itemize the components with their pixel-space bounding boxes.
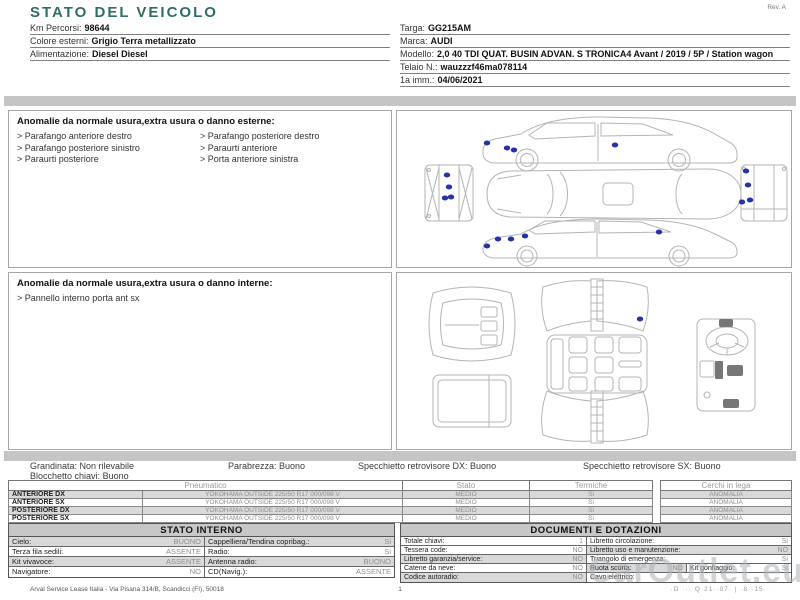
documents-title: DOCUMENTI E DOTAZIONI: [401, 524, 791, 537]
tyre-spec: YOKOHAMA OUTSIDE 225/50 R17 000/098 V: [143, 515, 403, 523]
interior-state-table: STATO INTERNO Cielo:BUONOCappelliera/Ten…: [8, 523, 395, 578]
info-value: Grigio Terra metallizzato: [92, 36, 196, 46]
kv-cell: Antenna radio:BUONO: [205, 557, 394, 566]
kv-row: Terza fila sedili:ASSENTERadio:Si: [9, 547, 394, 557]
tyre-table: Pneumatico Stato Termiche ANTERIORE DXYO…: [8, 480, 653, 523]
tyre-col-pneumatico: Pneumatico: [9, 481, 403, 491]
info-value: 2,0 40 TDI QUAT. BUSIN ADVAN. S TRONICA4…: [437, 49, 773, 59]
kv-label: Cappelliera/Tendina copribag.:: [208, 537, 309, 546]
kv-row: Totale chiavi:1Libretto circolazione:Si: [401, 537, 791, 546]
kv-cell: Cappelliera/Tendina copribag.:Si: [205, 537, 394, 546]
tyre-state: MEDIO: [403, 491, 530, 499]
interior-damage-markers: [637, 317, 643, 322]
anomaly-item: > Paraurti anteriore: [200, 143, 383, 155]
damage-marker: [747, 198, 753, 203]
info-row: Targa:GG215AM: [400, 22, 790, 35]
damage-marker: [743, 169, 749, 174]
info-label: Km Percorsi:: [30, 23, 82, 33]
kv-label: Kit vivavoce:: [12, 557, 54, 566]
info-label: Telaio N.:: [400, 62, 438, 72]
revision-label: Rev. A: [767, 4, 786, 11]
anomaly-item: > Porta anteriore sinistra: [200, 154, 383, 166]
info-value: 04/06/2021: [438, 75, 483, 85]
tyre-thermal: Si: [530, 515, 653, 523]
damage-marker: [484, 244, 490, 249]
car-exterior-diagram-svg: [397, 111, 791, 267]
damage-marker: [637, 317, 643, 322]
damage-marker: [612, 143, 618, 148]
separator-bar: [4, 451, 796, 461]
alloy-col-header: Cerchi in lega: [661, 481, 792, 491]
tyre-table-header-row: Pneumatico Stato Termiche: [9, 481, 653, 491]
tyre-row: POSTERIORE SXYOKOHAMA OUTSIDE 225/50 R17…: [9, 515, 653, 523]
interior-state-title: STATO INTERNO: [9, 524, 394, 537]
alloy-row: ANOMALIA: [661, 515, 792, 523]
tyre-state: MEDIO: [403, 499, 530, 507]
condition-item: Parabrezza: Buono: [228, 461, 305, 471]
damage-marker: [656, 230, 662, 235]
kv-value: NO: [573, 573, 584, 582]
kv-cell: Kit vivavoce:ASSENTE: [9, 557, 205, 566]
caroutlet-watermark: CarOutlet.eu: [588, 552, 800, 591]
tyre-spec: YOKOHAMA OUTSIDE 225/50 R17 000/098 V: [143, 499, 403, 507]
kv-label: Antenna radio:: [208, 557, 257, 566]
tyre-spec: YOKOHAMA OUTSIDE 225/50 R17 000/098 V: [143, 507, 403, 515]
interior-anomalies-header: Anomalie da normale usura,extra usura o …: [17, 278, 383, 289]
damage-marker: [448, 195, 454, 200]
kv-value: Si: [384, 547, 391, 556]
condition-item: Specchietto retrovisore DX: Buono: [358, 461, 496, 471]
kv-value: NO: [573, 555, 584, 563]
kv-cell: Libretto circolazione:Si: [587, 537, 791, 545]
interior-anomalies-box: Anomalie da normale usura,extra usura o …: [8, 272, 392, 450]
kv-cell: Catene da neve:NO: [401, 564, 587, 572]
alloy-state: ANOMALIA: [661, 507, 792, 515]
kv-value: Si: [782, 537, 788, 545]
kv-value: NO: [573, 546, 584, 554]
condition-item: Specchietto retrovisore SX: Buono: [583, 461, 721, 471]
kv-cell: Totale chiavi:1: [401, 537, 587, 545]
damage-marker: [444, 173, 450, 178]
kv-row: Cielo:BUONOCappelliera/Tendina copribag.…: [9, 537, 394, 547]
tyre-thermal: Si: [530, 499, 653, 507]
exterior-anomalies-box: Anomalie da normale usura,extra usura o …: [8, 110, 392, 268]
car-interior-diagram-svg: [397, 273, 791, 449]
info-label: Colore esterni:: [30, 36, 89, 46]
exterior-anomalies-col1: > Parafango anteriore destro> Parafango …: [17, 131, 200, 166]
info-row: Km Percorsi:98644: [30, 22, 390, 35]
kv-label: Catene da neve:: [404, 564, 455, 572]
tyre-col-termiche: Termiche: [530, 481, 653, 491]
kv-value: ASSENTE: [166, 557, 201, 566]
alloy-state: ANOMALIA: [661, 515, 792, 523]
kv-label: Libretto garanzia/service:: [404, 555, 482, 563]
exterior-damage-diagram: [396, 110, 792, 268]
alloy-state: ANOMALIA: [661, 491, 792, 499]
kv-label: Libretto circolazione:: [590, 537, 654, 545]
tyre-position: ANTERIORE SX: [9, 499, 143, 507]
info-row: Marca:AUDI: [400, 35, 790, 48]
kv-label: CD(Navig.):: [208, 567, 247, 577]
info-row: Colore esterni:Grigio Terra metallizzato: [30, 35, 390, 48]
kv-label: Tessera code:: [404, 546, 448, 554]
kv-row: Kit vivavoce:ASSENTEAntenna radio:BUONO: [9, 557, 394, 567]
alloy-row: ANOMALIA: [661, 491, 792, 499]
kv-label: Cielo:: [12, 537, 31, 546]
tyre-row: POSTERIORE DXYOKOHAMA OUTSIDE 225/50 R17…: [9, 507, 653, 515]
kv-value: 1: [579, 537, 583, 545]
kv-value: Si: [384, 537, 391, 546]
tyre-row: ANTERIORE SXYOKOHAMA OUTSIDE 225/50 R17 …: [9, 499, 653, 507]
kv-cell: Tessera code:NO: [401, 546, 587, 554]
kv-value: NO: [573, 564, 584, 572]
vehicle-info-right: Targa:GG215AMMarca:AUDIModello:2,0 40 TD…: [400, 22, 790, 87]
page-title: STATO DEL VEICOLO: [30, 4, 218, 21]
info-label: Targa:: [400, 23, 425, 33]
damage-marker: [446, 185, 452, 190]
info-row: Telaio N.:wauzzzf46ma078114: [400, 61, 790, 74]
info-row: Alimentazione:Diesel Diesel: [30, 48, 390, 61]
exterior-anomalies-col2: > Parafango posteriore destro> Paraurti …: [200, 131, 383, 166]
kv-cell: Cielo:BUONO: [9, 537, 205, 546]
vehicle-info-left: Km Percorsi:98644Colore esterni:Grigio T…: [30, 22, 390, 61]
damage-marker: [508, 237, 514, 242]
alloy-row: ANOMALIA: [661, 507, 792, 515]
damage-marker: [442, 196, 448, 201]
alloy-header-row: Cerchi in lega: [661, 481, 792, 491]
kv-value: ASSENTE: [166, 547, 201, 556]
tyre-col-stato: Stato: [403, 481, 530, 491]
info-label: Marca:: [400, 36, 428, 46]
info-label: 1a imm.:: [400, 75, 435, 85]
tyre-row: ANTERIORE DXYOKOHAMA OUTSIDE 225/50 R17 …: [9, 491, 653, 499]
kv-label: Totale chiavi:: [404, 537, 444, 545]
tyre-position: POSTERIORE SX: [9, 515, 143, 523]
alloy-row: ANOMALIA: [661, 499, 792, 507]
damage-marker: [484, 141, 490, 146]
alloy-wheels-table: Cerchi in lega ANOMALIAANOMALIAANOMALIAA…: [660, 480, 792, 523]
info-row: 1a imm.:04/06/2021: [400, 74, 790, 87]
kv-value: NO: [190, 567, 201, 577]
exterior-anomalies-header: Anomalie da normale usura,extra usura o …: [17, 116, 383, 127]
tyre-spec: YOKOHAMA OUTSIDE 225/50 R17 000/098 V: [143, 491, 403, 499]
damage-marker: [511, 148, 517, 153]
kv-label: Navigatore:: [12, 567, 50, 577]
info-label: Alimentazione:: [30, 49, 89, 59]
kv-label: Terza fila sedili:: [12, 547, 63, 556]
tyre-state: MEDIO: [403, 515, 530, 523]
info-value: GG215AM: [428, 23, 471, 33]
interior-anomalies-col1: > Pannello interno porta ant sx: [17, 293, 200, 305]
kv-cell: Codice autoradio:NO: [401, 573, 587, 582]
interior-anomalies-col2: [200, 293, 383, 305]
kv-label: Radio:: [208, 547, 230, 556]
separator-bar: [4, 96, 796, 106]
info-value: wauzzzf46ma078114: [441, 62, 528, 72]
info-value: 98644: [85, 23, 110, 33]
anomaly-item: > Paraurti posteriore: [17, 154, 200, 166]
anomaly-item: > Parafango posteriore destro: [200, 131, 383, 143]
condition-item: Grandinata: Non rilevabile: [30, 461, 134, 471]
damage-marker: [504, 146, 510, 151]
tyre-state: MEDIO: [403, 507, 530, 515]
kv-value: BUONO: [363, 557, 391, 566]
info-value: AUDI: [431, 36, 453, 46]
kv-label: Codice autoradio:: [404, 573, 459, 582]
kv-cell: Radio:Si: [205, 547, 394, 556]
info-value: Diesel Diesel: [92, 49, 148, 59]
kv-cell: Libretto garanzia/service:NO: [401, 555, 587, 563]
tyre-position: POSTERIORE DX: [9, 507, 143, 515]
tyre-thermal: Si: [530, 507, 653, 515]
info-label: Modello:: [400, 49, 434, 59]
damage-marker: [745, 183, 751, 188]
damage-marker: [522, 234, 528, 239]
anomaly-item: > Parafango posteriore sinistro: [17, 143, 200, 155]
tyre-thermal: Si: [530, 491, 653, 499]
kv-value: ASSENTE: [356, 567, 391, 577]
kv-cell: Terza fila sedili:ASSENTE: [9, 547, 205, 556]
info-row: Modello:2,0 40 TDI QUAT. BUSIN ADVAN. S …: [400, 48, 790, 61]
alloy-state: ANOMALIA: [661, 499, 792, 507]
kv-row: Navigatore:NOCD(Navig.):ASSENTE: [9, 567, 394, 577]
damage-marker: [495, 237, 501, 242]
kv-cell: CD(Navig.):ASSENTE: [205, 567, 394, 577]
kv-value: BUONO: [173, 537, 201, 546]
kv-cell: Navigatore:NO: [9, 567, 205, 577]
tyre-position: ANTERIORE DX: [9, 491, 143, 499]
anomaly-item: > Pannello interno porta ant sx: [17, 293, 200, 305]
anomaly-item: > Parafango anteriore destro: [17, 131, 200, 143]
interior-damage-diagram: [396, 272, 792, 450]
damage-marker: [739, 200, 745, 205]
